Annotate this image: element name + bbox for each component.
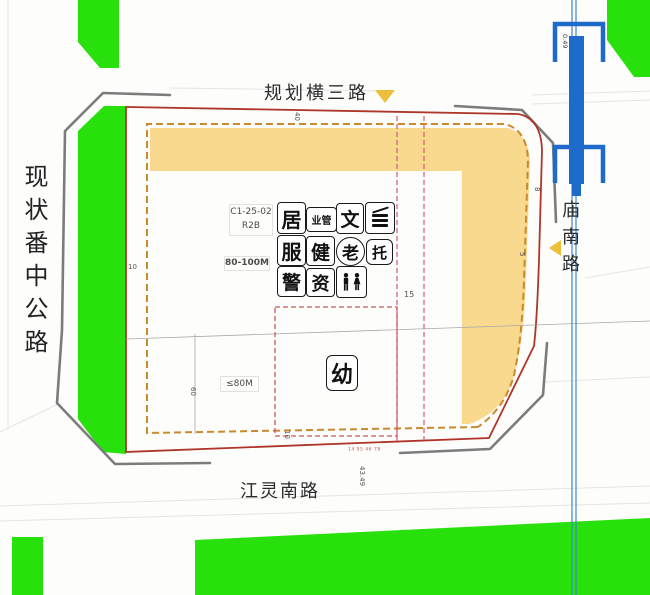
dim-parcel-depth: 60	[189, 387, 197, 396]
green-left-strip	[78, 106, 126, 454]
land-use-code: R2B	[230, 219, 272, 233]
facility-recycling: 资	[306, 268, 335, 297]
bridge-deck	[569, 36, 584, 184]
bridge-tail	[572, 184, 581, 196]
road-label-bottom: 江灵南路	[240, 477, 320, 503]
dim-chainage-bottom: 43.49	[358, 466, 366, 486]
dim-setback-right-lower: 5	[518, 252, 526, 256]
planning-map: 规划横三路 现状番中公路 江灵南路 庙南路 C1-25-02 R2B 80-10…	[0, 0, 650, 595]
dim-setback-left: 10	[128, 263, 137, 271]
dim-center-offset: 15	[404, 290, 414, 299]
green-bottom-left	[12, 537, 43, 595]
facility-culture: 文	[336, 203, 364, 234]
facility-health: 健	[306, 236, 335, 266]
parcel-code-chip: C1-25-02 R2B	[229, 204, 273, 236]
market-stack-icon	[366, 209, 394, 227]
dim-road-top: 40	[293, 112, 301, 121]
facility-nursery: 托	[366, 239, 393, 265]
green-top-right	[607, 0, 650, 77]
kindergarten-box: 幼	[326, 355, 358, 391]
dim-chainage-bridge: 0.49	[561, 34, 569, 48]
road-label-left: 现状番中公路	[16, 164, 51, 362]
green-top-left	[78, 0, 119, 68]
road-label-top: 规划横三路	[264, 79, 369, 105]
dim-setback-right-upper: 8	[533, 187, 541, 191]
green-bottom-wide	[195, 518, 650, 595]
marker-triangle-top	[375, 90, 395, 103]
height-limit-south: ≤80M	[220, 376, 259, 392]
height-limit-north: 80-100M	[224, 256, 270, 271]
facility-service: 服	[277, 235, 306, 266]
facility-police: 警	[277, 266, 306, 297]
facility-toilet	[336, 266, 367, 298]
facility-business-mgmt: 业管	[306, 207, 337, 232]
parcel-code: C1-25-02	[230, 205, 272, 219]
facility-elderly: 老	[336, 237, 365, 266]
facility-market	[365, 202, 395, 234]
toilet-icon	[340, 272, 364, 292]
facility-residential: 居	[277, 202, 306, 234]
road-label-right: 庙南路	[557, 200, 583, 281]
red-line-note: 14 95 46 78	[348, 447, 381, 452]
dim-setback-bottom: 10	[283, 430, 291, 439]
